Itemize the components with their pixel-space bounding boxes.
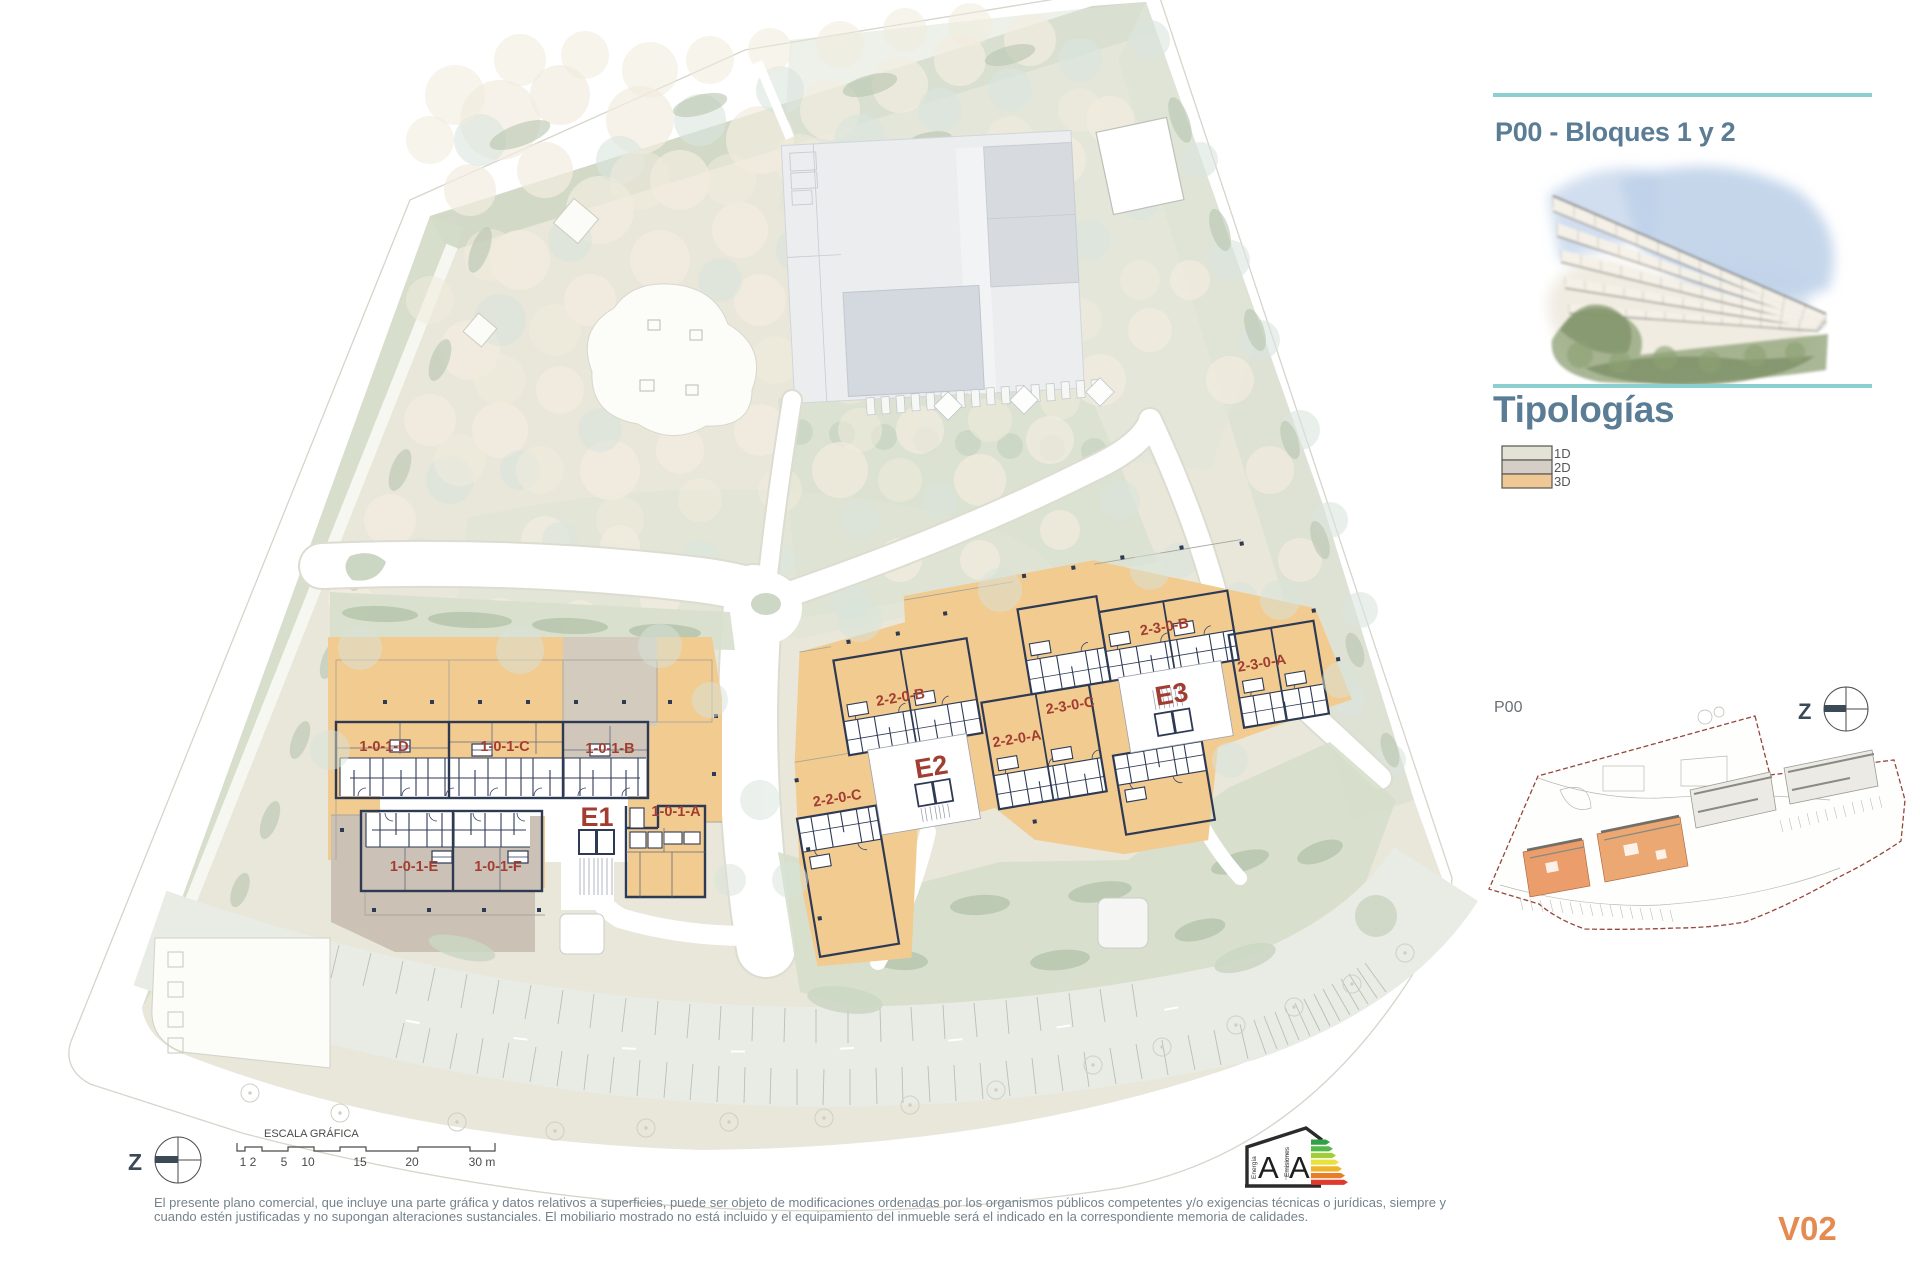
svg-text:3D: 3D	[1554, 474, 1571, 489]
svg-text:P00: P00	[1494, 699, 1523, 716]
svg-text:Z: Z	[128, 1149, 142, 1175]
svg-text:1-0-1-F: 1-0-1-F	[474, 859, 522, 875]
svg-text:1-0-1-D: 1-0-1-D	[359, 739, 408, 755]
svg-text:1-0-1-E: 1-0-1-E	[390, 859, 439, 875]
svg-text:A: A	[1289, 1150, 1310, 1185]
svg-text:Z: Z	[1798, 699, 1811, 724]
svg-text:Tipologías: Tipologías	[1493, 389, 1674, 430]
svg-text:E2: E2	[913, 749, 951, 784]
svg-text:5: 5	[281, 1155, 288, 1169]
svg-text:1: 1	[240, 1155, 247, 1169]
svg-text:1-0-1-A: 1-0-1-A	[651, 804, 701, 820]
svg-text:1-0-1-C: 1-0-1-C	[480, 739, 530, 755]
svg-text:P00 - Bloques 1 y 2: P00 - Bloques 1 y 2	[1495, 117, 1735, 147]
svg-text:20: 20	[405, 1155, 419, 1169]
svg-text:A: A	[1258, 1150, 1279, 1185]
svg-text:2D: 2D	[1554, 460, 1571, 475]
svg-text:1-0-1-B: 1-0-1-B	[585, 741, 634, 757]
svg-text:10: 10	[301, 1155, 315, 1169]
svg-text:1D: 1D	[1554, 446, 1571, 461]
svg-text:30 m: 30 m	[469, 1155, 496, 1169]
svg-text:E1: E1	[580, 802, 613, 832]
svg-text:2: 2	[250, 1155, 257, 1169]
svg-text:El presente plano comercial, q: El presente plano comercial, que incluye…	[154, 1195, 1447, 1210]
svg-text:ESCALA GRÁFICA: ESCALA GRÁFICA	[264, 1127, 359, 1140]
svg-text:Emisiones: Emisiones	[1284, 1146, 1291, 1177]
svg-text:E3: E3	[1153, 677, 1191, 712]
svg-text:15: 15	[353, 1155, 367, 1169]
svg-text:Energía: Energía	[1251, 1156, 1258, 1179]
svg-text:V02: V02	[1778, 1210, 1837, 1247]
svg-text:cuando estén justificadas y no: cuando estén justificadas y no supongan …	[154, 1209, 1308, 1224]
